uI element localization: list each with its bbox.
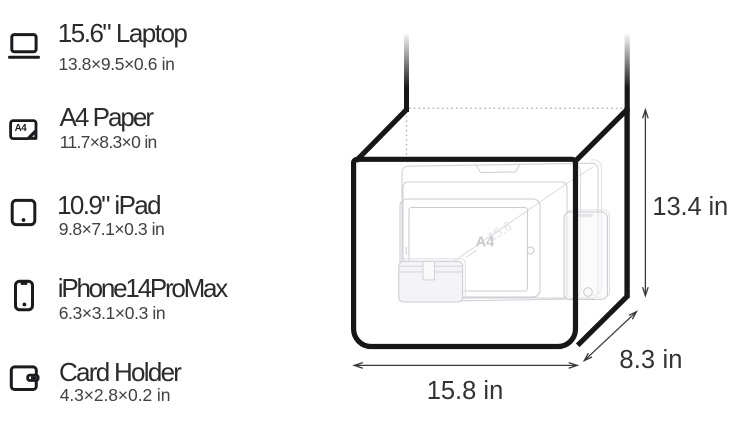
- svg-text:A4: A4: [476, 234, 495, 251]
- svg-text:A4: A4: [15, 123, 28, 134]
